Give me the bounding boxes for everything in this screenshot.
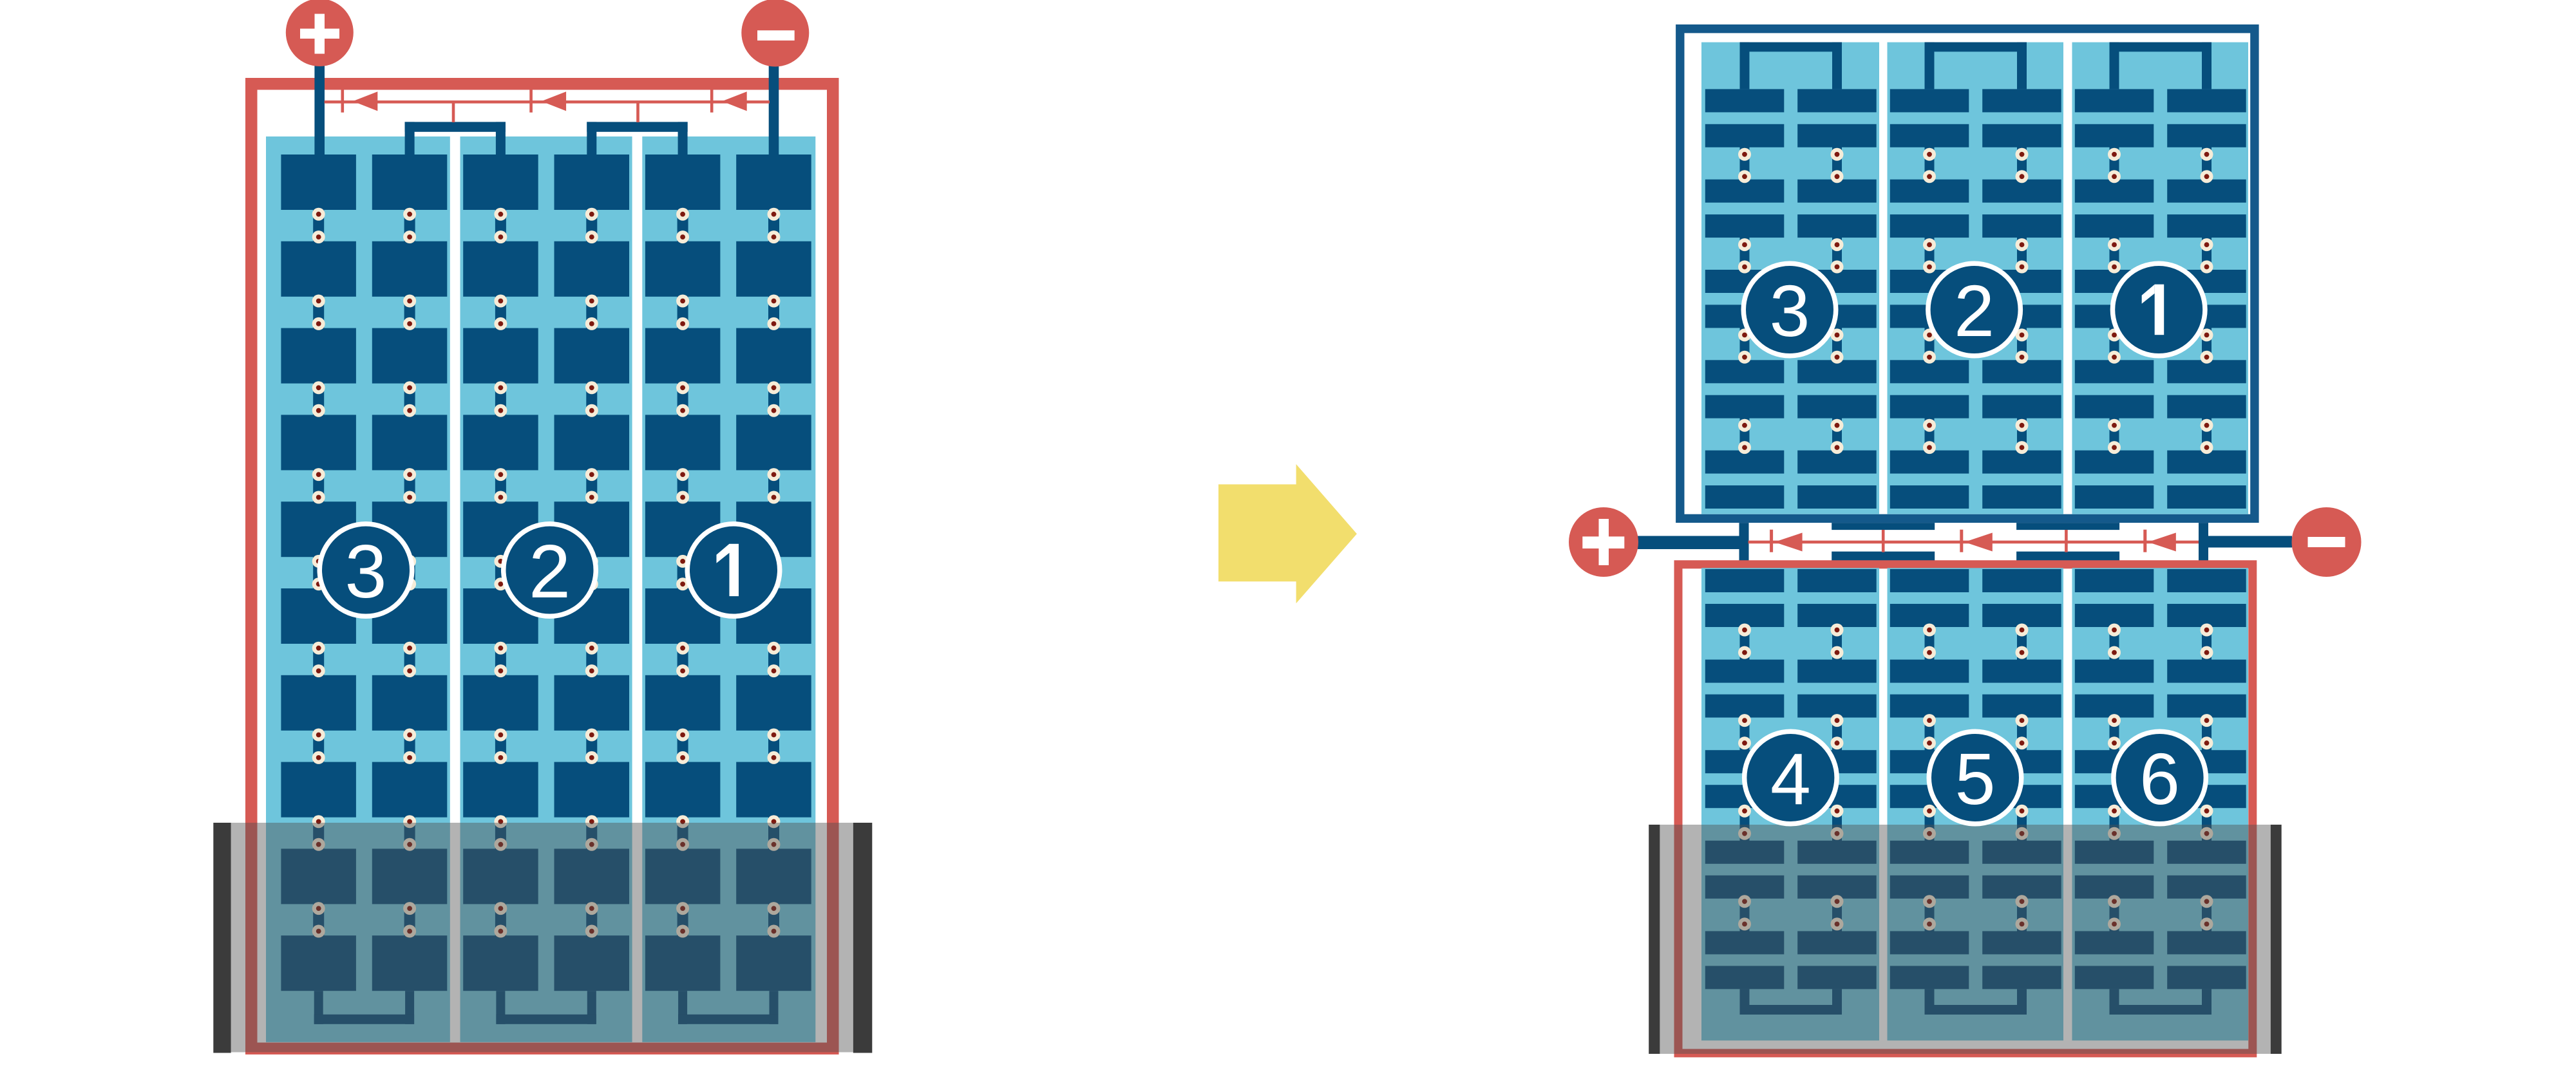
svg-text:4: 4: [1770, 738, 1811, 820]
svg-text:5: 5: [1955, 738, 1996, 820]
svg-text:3: 3: [1770, 270, 1810, 351]
svg-text:2: 2: [529, 529, 571, 614]
svg-text:2: 2: [1954, 270, 1994, 351]
svg-text:6: 6: [2139, 738, 2180, 820]
svg-text:3: 3: [345, 529, 386, 614]
